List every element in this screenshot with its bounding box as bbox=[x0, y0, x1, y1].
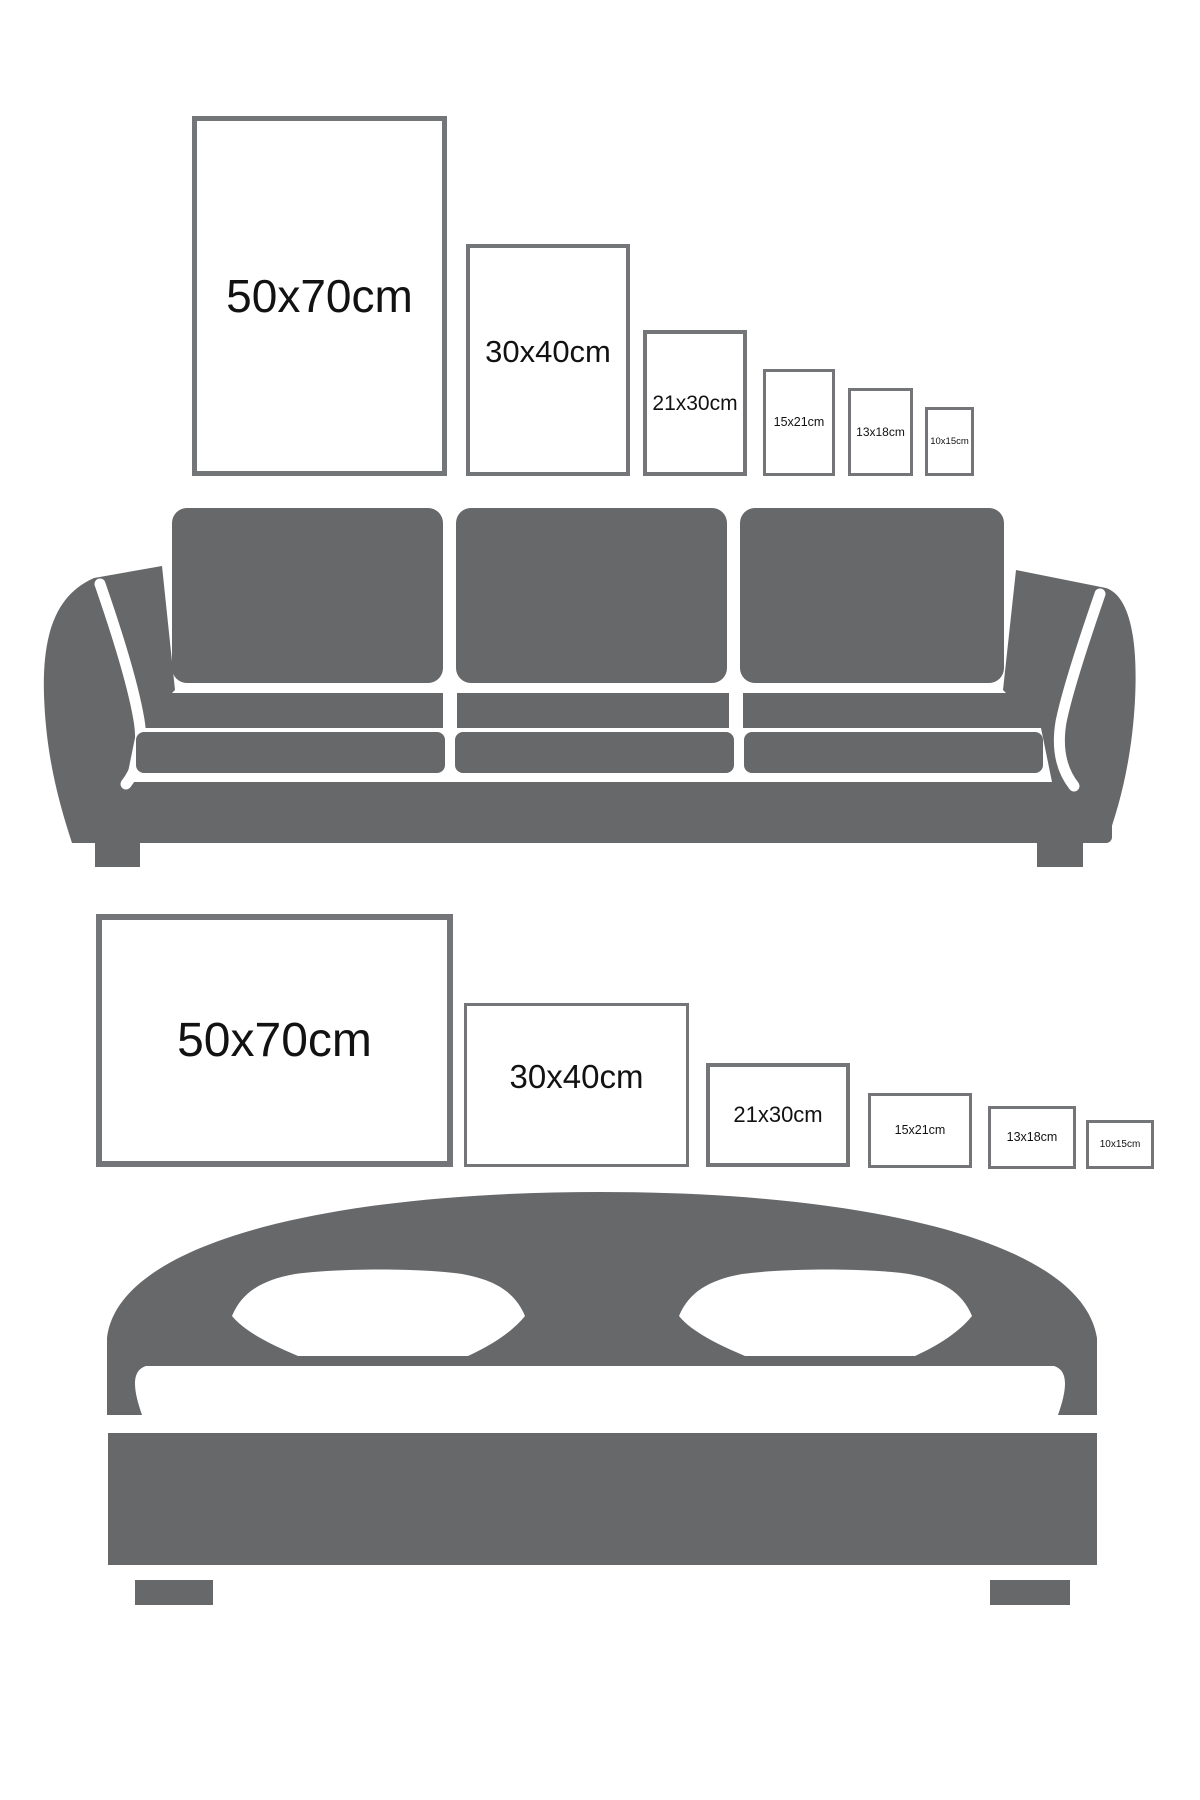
sofa-back-cushion-right bbox=[740, 508, 1004, 683]
sofa-seat-deck bbox=[130, 693, 1046, 728]
bed-leg-right bbox=[990, 1580, 1070, 1605]
sofa-icon bbox=[44, 508, 1136, 867]
sofa-seat-cushion-right bbox=[744, 732, 1043, 773]
sofa-seat-cushion-middle bbox=[455, 732, 734, 773]
sofa-seat-cushion-left bbox=[136, 732, 445, 773]
sofa-back-cushion-middle bbox=[456, 508, 727, 683]
bed-pillow-right bbox=[679, 1270, 972, 1357]
bed-icon bbox=[107, 1192, 1097, 1605]
poster-size-guide: 50x70cm 30x40cm 21x30cm 15x21cm 13x18cm … bbox=[0, 0, 1200, 1800]
deck-divider-right bbox=[729, 687, 743, 732]
deck-divider-left bbox=[443, 687, 457, 732]
bed-leg-left bbox=[135, 1580, 213, 1605]
bed-base bbox=[108, 1433, 1097, 1565]
sofa-base bbox=[74, 782, 1112, 843]
bed-pillow-left bbox=[232, 1270, 525, 1357]
sofa-back-cushion-left bbox=[172, 508, 443, 683]
sofa-leg-left bbox=[95, 843, 140, 867]
furniture-artwork bbox=[0, 0, 1200, 1800]
sofa-leg-right bbox=[1037, 843, 1083, 867]
